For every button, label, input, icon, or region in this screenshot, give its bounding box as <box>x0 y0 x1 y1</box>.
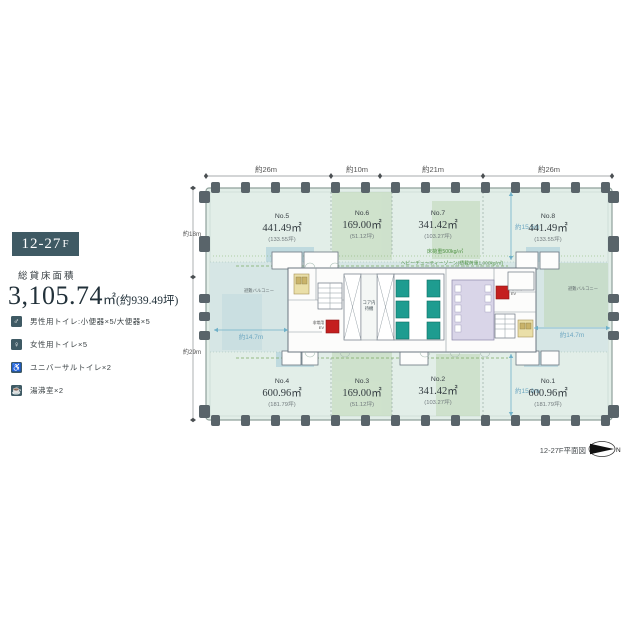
core-hall-label: コア内 <box>363 299 376 306</box>
dimension-label: 約21m <box>422 164 444 174</box>
building-core: 非常用 EV 非常用 EV コア内 待機 <box>272 252 559 365</box>
svg-text:(103.27坪): (103.27坪) <box>424 232 451 240</box>
svg-text:No.8: No.8 <box>541 213 556 220</box>
svg-text:600.96㎡: 600.96㎡ <box>528 387 568 399</box>
dimension-label: 約18m <box>183 230 201 238</box>
emergency-elevator <box>496 286 509 299</box>
svg-text:(133.55坪): (133.55坪) <box>534 235 561 243</box>
dimension-label: 約29m <box>183 348 201 356</box>
emergency-ev-label: 非常用 <box>313 320 325 325</box>
svg-text:341.42㎡: 341.42㎡ <box>418 385 458 397</box>
svg-text:169.00㎡: 169.00㎡ <box>342 219 382 231</box>
svg-text:169.00㎡: 169.00㎡ <box>342 387 382 399</box>
svg-text:No.1: No.1 <box>541 378 556 385</box>
dimension-label: 約26m <box>538 164 560 174</box>
svg-text:(133.55坪): (133.55坪) <box>268 235 295 243</box>
north-arrow-icon: N <box>589 442 621 457</box>
svg-text:(181.79坪): (181.79坪) <box>268 400 295 408</box>
dimension-label: 約10m <box>346 164 368 174</box>
floor-load-note: 床荷重500kg/㎡ <box>427 247 464 255</box>
svg-text:(51.12坪): (51.12坪) <box>350 400 374 408</box>
emergency-elevator <box>326 320 339 333</box>
svg-text:600.96㎡: 600.96㎡ <box>262 387 302 399</box>
svg-text:(181.79坪): (181.79坪) <box>534 400 561 408</box>
svg-text:(51.12坪): (51.12坪) <box>350 232 374 240</box>
svg-text:441.49㎡: 441.49㎡ <box>262 222 302 234</box>
core-hall-label: 待機 <box>365 305 374 312</box>
emergency-ev-label: EV <box>511 292 517 296</box>
svg-text:No.2: No.2 <box>431 376 446 383</box>
svg-text:441.49㎡: 441.49㎡ <box>528 222 568 234</box>
floorplan-page: 12-27 F 総貸床面積 3,105.74㎡(約939.49坪) ♂ 男性用ト… <box>0 0 630 630</box>
span-dimension-label: 約14.7m <box>239 332 264 341</box>
heavy-duty-note: ヘビーデューティーゾーン(積載荷重1,000kg/㎡) <box>401 260 504 267</box>
emergency-ev-label: EV <box>319 326 325 330</box>
balcony-label: 避難バルコニー <box>568 285 598 292</box>
dimension-label: 約26m <box>255 164 277 174</box>
svg-text:(103.27坪): (103.27坪) <box>424 398 451 406</box>
svg-text:No.3: No.3 <box>355 378 370 385</box>
svg-text:No.4: No.4 <box>275 378 290 385</box>
balcony-label: 避難バルコニー <box>244 287 274 294</box>
floor-plan: 床荷重500kg/㎡ ヘビーデューティーゾーン(積載荷重1,000kg/㎡) <box>0 0 630 630</box>
svg-text:No.5: No.5 <box>275 213 290 220</box>
svg-text:No.7: No.7 <box>431 210 446 217</box>
svg-text:341.42㎡: 341.42㎡ <box>418 219 458 231</box>
north-label: N <box>616 447 621 454</box>
span-dimension-label: 約14.7m <box>560 330 585 339</box>
plan-caption: 12-27F平面図 <box>540 446 586 455</box>
svg-text:No.6: No.6 <box>355 210 370 217</box>
